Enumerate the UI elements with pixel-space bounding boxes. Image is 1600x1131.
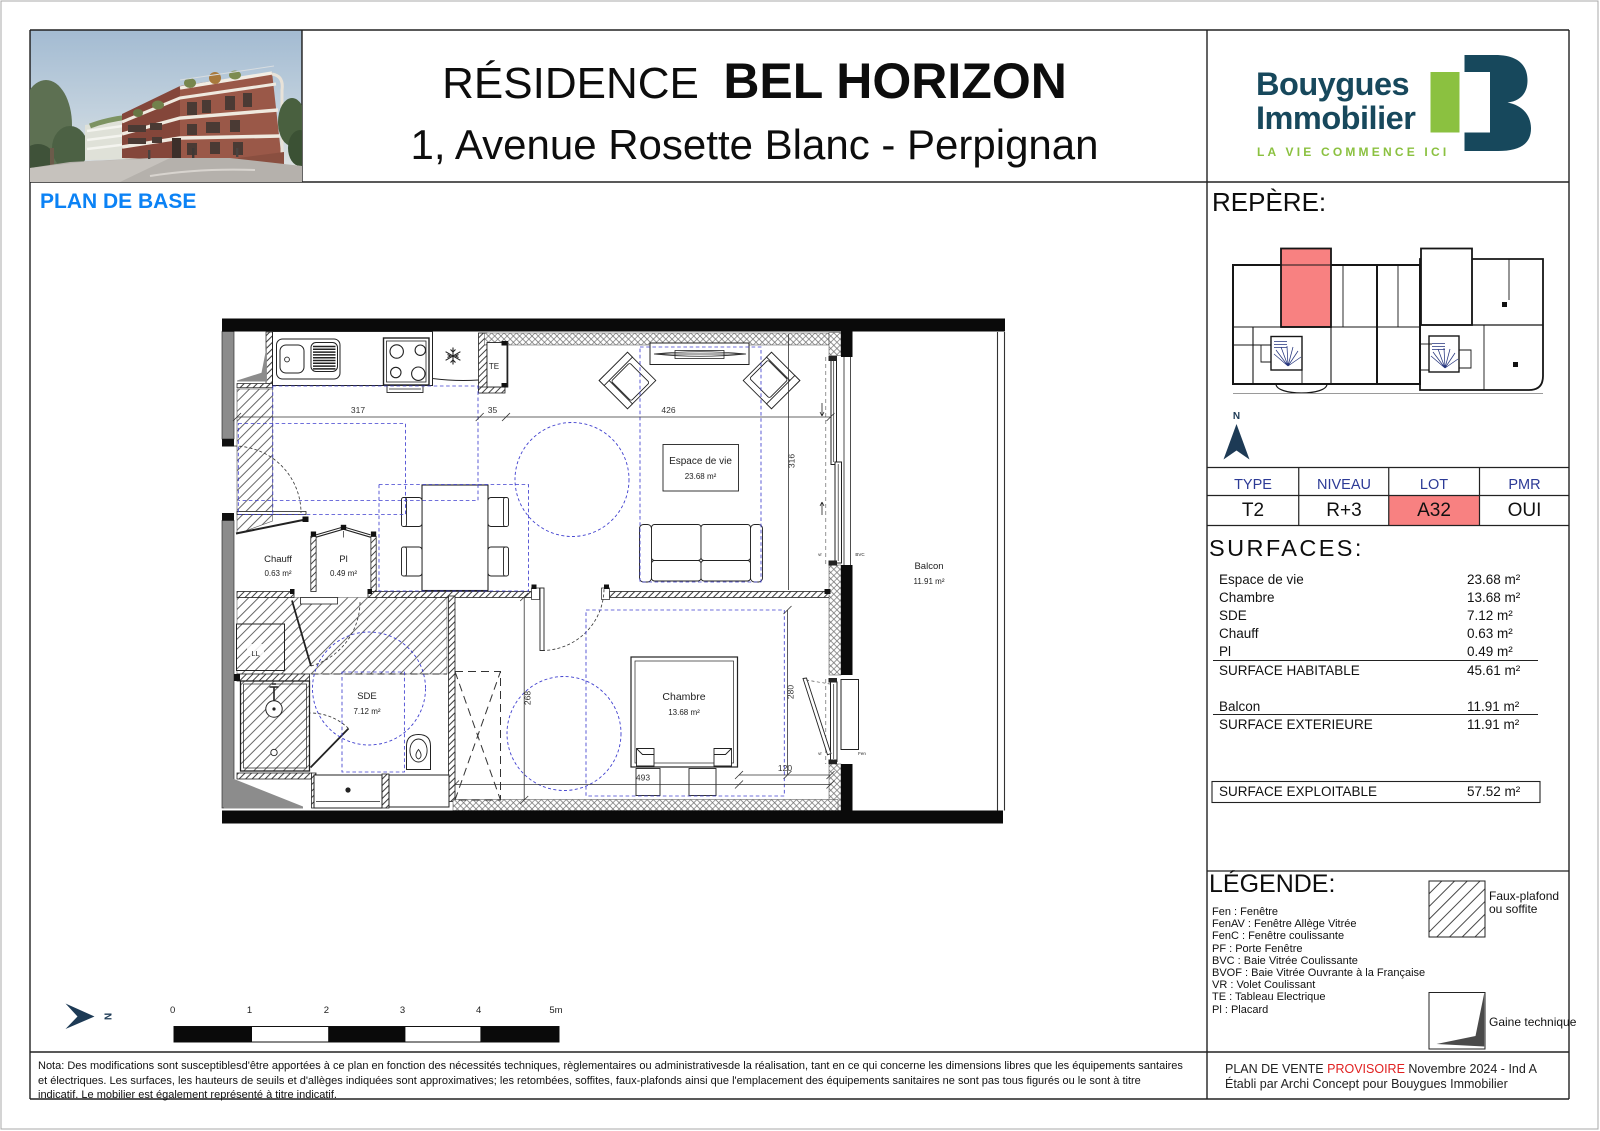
svg-text:3: 3 [400, 1005, 405, 1016]
svg-text:280: 280 [786, 685, 796, 699]
svg-text:Chauff: Chauff [264, 554, 292, 565]
svg-text:316: 316 [787, 454, 797, 468]
svg-text:5m: 5m [549, 1005, 562, 1016]
svg-text:0.63 m²: 0.63 m² [264, 569, 291, 578]
svg-text:Balcon: Balcon [914, 561, 943, 572]
svg-text:23.68 m²: 23.68 m² [685, 472, 717, 481]
svg-text:11.91 m²: 11.91 m² [914, 577, 945, 586]
svg-text:4: 4 [476, 1005, 481, 1016]
svg-text:TE: TE [489, 362, 499, 371]
svg-text:N: N [1233, 411, 1240, 422]
svg-text:Espace de vie: Espace de vie [669, 456, 732, 467]
svg-text:N: N [101, 1013, 112, 1020]
svg-text:2: 2 [324, 1005, 329, 1016]
svg-text:268: 268 [523, 691, 533, 705]
svg-text:7.12 m²: 7.12 m² [353, 707, 380, 716]
svg-text:vr: vr [818, 751, 822, 756]
svg-text:120: 120 [778, 763, 792, 773]
svg-text:BVC: BVC [855, 552, 865, 557]
svg-text:vr: vr [818, 552, 822, 557]
svg-text:426: 426 [661, 405, 675, 415]
svg-text:317: 317 [351, 405, 365, 415]
svg-text:13.68 m²: 13.68 m² [668, 708, 700, 717]
svg-text:Chambre: Chambre [662, 691, 705, 703]
svg-text:35: 35 [488, 405, 498, 415]
svg-text:LL: LL [251, 649, 259, 658]
svg-text:Pl: Pl [339, 554, 347, 565]
svg-text:SDE: SDE [357, 691, 377, 702]
svg-text:493: 493 [636, 773, 650, 783]
svg-text:Fen: Fen [858, 751, 866, 756]
svg-text:0: 0 [170, 1005, 175, 1016]
svg-text:1: 1 [247, 1005, 252, 1016]
svg-text:0.49 m²: 0.49 m² [330, 569, 357, 578]
